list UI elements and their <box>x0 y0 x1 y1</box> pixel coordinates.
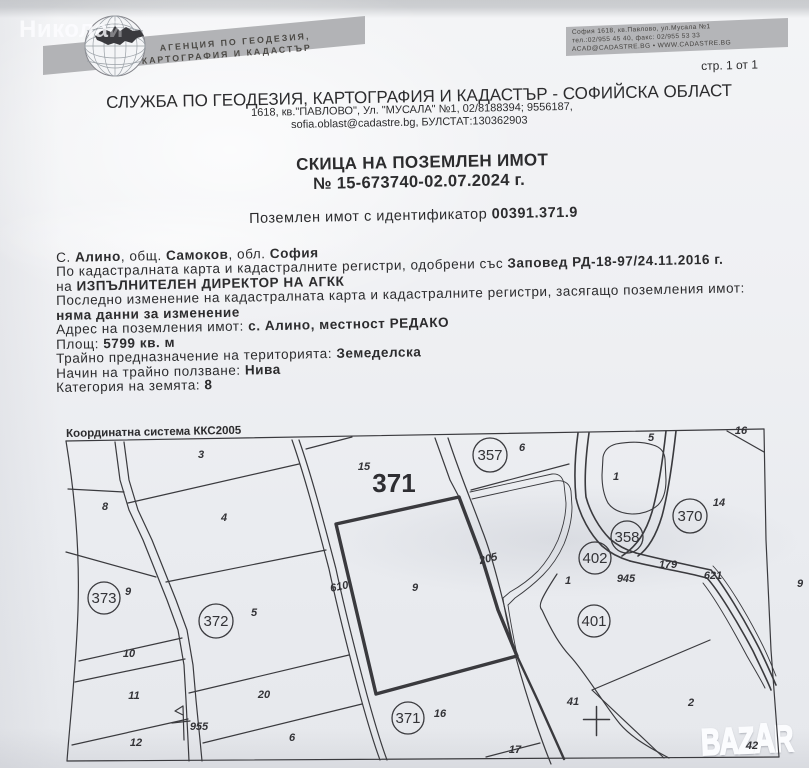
svg-text:6: 6 <box>289 732 296 744</box>
svg-text:8: 8 <box>102 501 109 513</box>
svg-text:6: 6 <box>519 442 526 454</box>
svg-text:373: 373 <box>91 590 116 607</box>
svg-text:16: 16 <box>735 425 748 437</box>
svg-text:3: 3 <box>198 449 204 461</box>
svg-text:41: 41 <box>566 696 579 708</box>
svg-text:9: 9 <box>412 582 419 594</box>
svg-text:14: 14 <box>713 497 725 509</box>
svg-text:10: 10 <box>123 648 136 660</box>
svg-text:357: 357 <box>477 447 502 464</box>
svg-text:9: 9 <box>797 578 804 590</box>
svg-text:402: 402 <box>582 550 607 567</box>
svg-text:4: 4 <box>220 512 227 524</box>
svg-text:401: 401 <box>581 613 606 630</box>
svg-text:945: 945 <box>617 573 636 585</box>
svg-text:179: 179 <box>659 559 678 571</box>
svg-text:9: 9 <box>125 586 132 598</box>
svg-text:955: 955 <box>190 721 209 733</box>
svg-text:370: 370 <box>677 508 702 525</box>
svg-text:16: 16 <box>434 708 447 720</box>
svg-text:42: 42 <box>745 740 758 752</box>
svg-text:1: 1 <box>565 575 571 587</box>
svg-text:358: 358 <box>614 529 639 546</box>
svg-text:5: 5 <box>648 432 655 444</box>
svg-text:15: 15 <box>358 461 371 473</box>
svg-text:5: 5 <box>251 607 258 619</box>
svg-text:621: 621 <box>704 570 722 582</box>
svg-text:371: 371 <box>395 710 420 727</box>
svg-text:372: 372 <box>203 613 228 630</box>
svg-text:610: 610 <box>329 579 350 595</box>
svg-text:2: 2 <box>687 697 694 709</box>
svg-text:371: 371 <box>372 468 415 498</box>
svg-text:11: 11 <box>128 690 139 702</box>
svg-text:12: 12 <box>130 737 142 749</box>
svg-text:17: 17 <box>509 744 522 756</box>
svg-text:20: 20 <box>257 689 271 701</box>
svg-text:1: 1 <box>613 471 619 483</box>
